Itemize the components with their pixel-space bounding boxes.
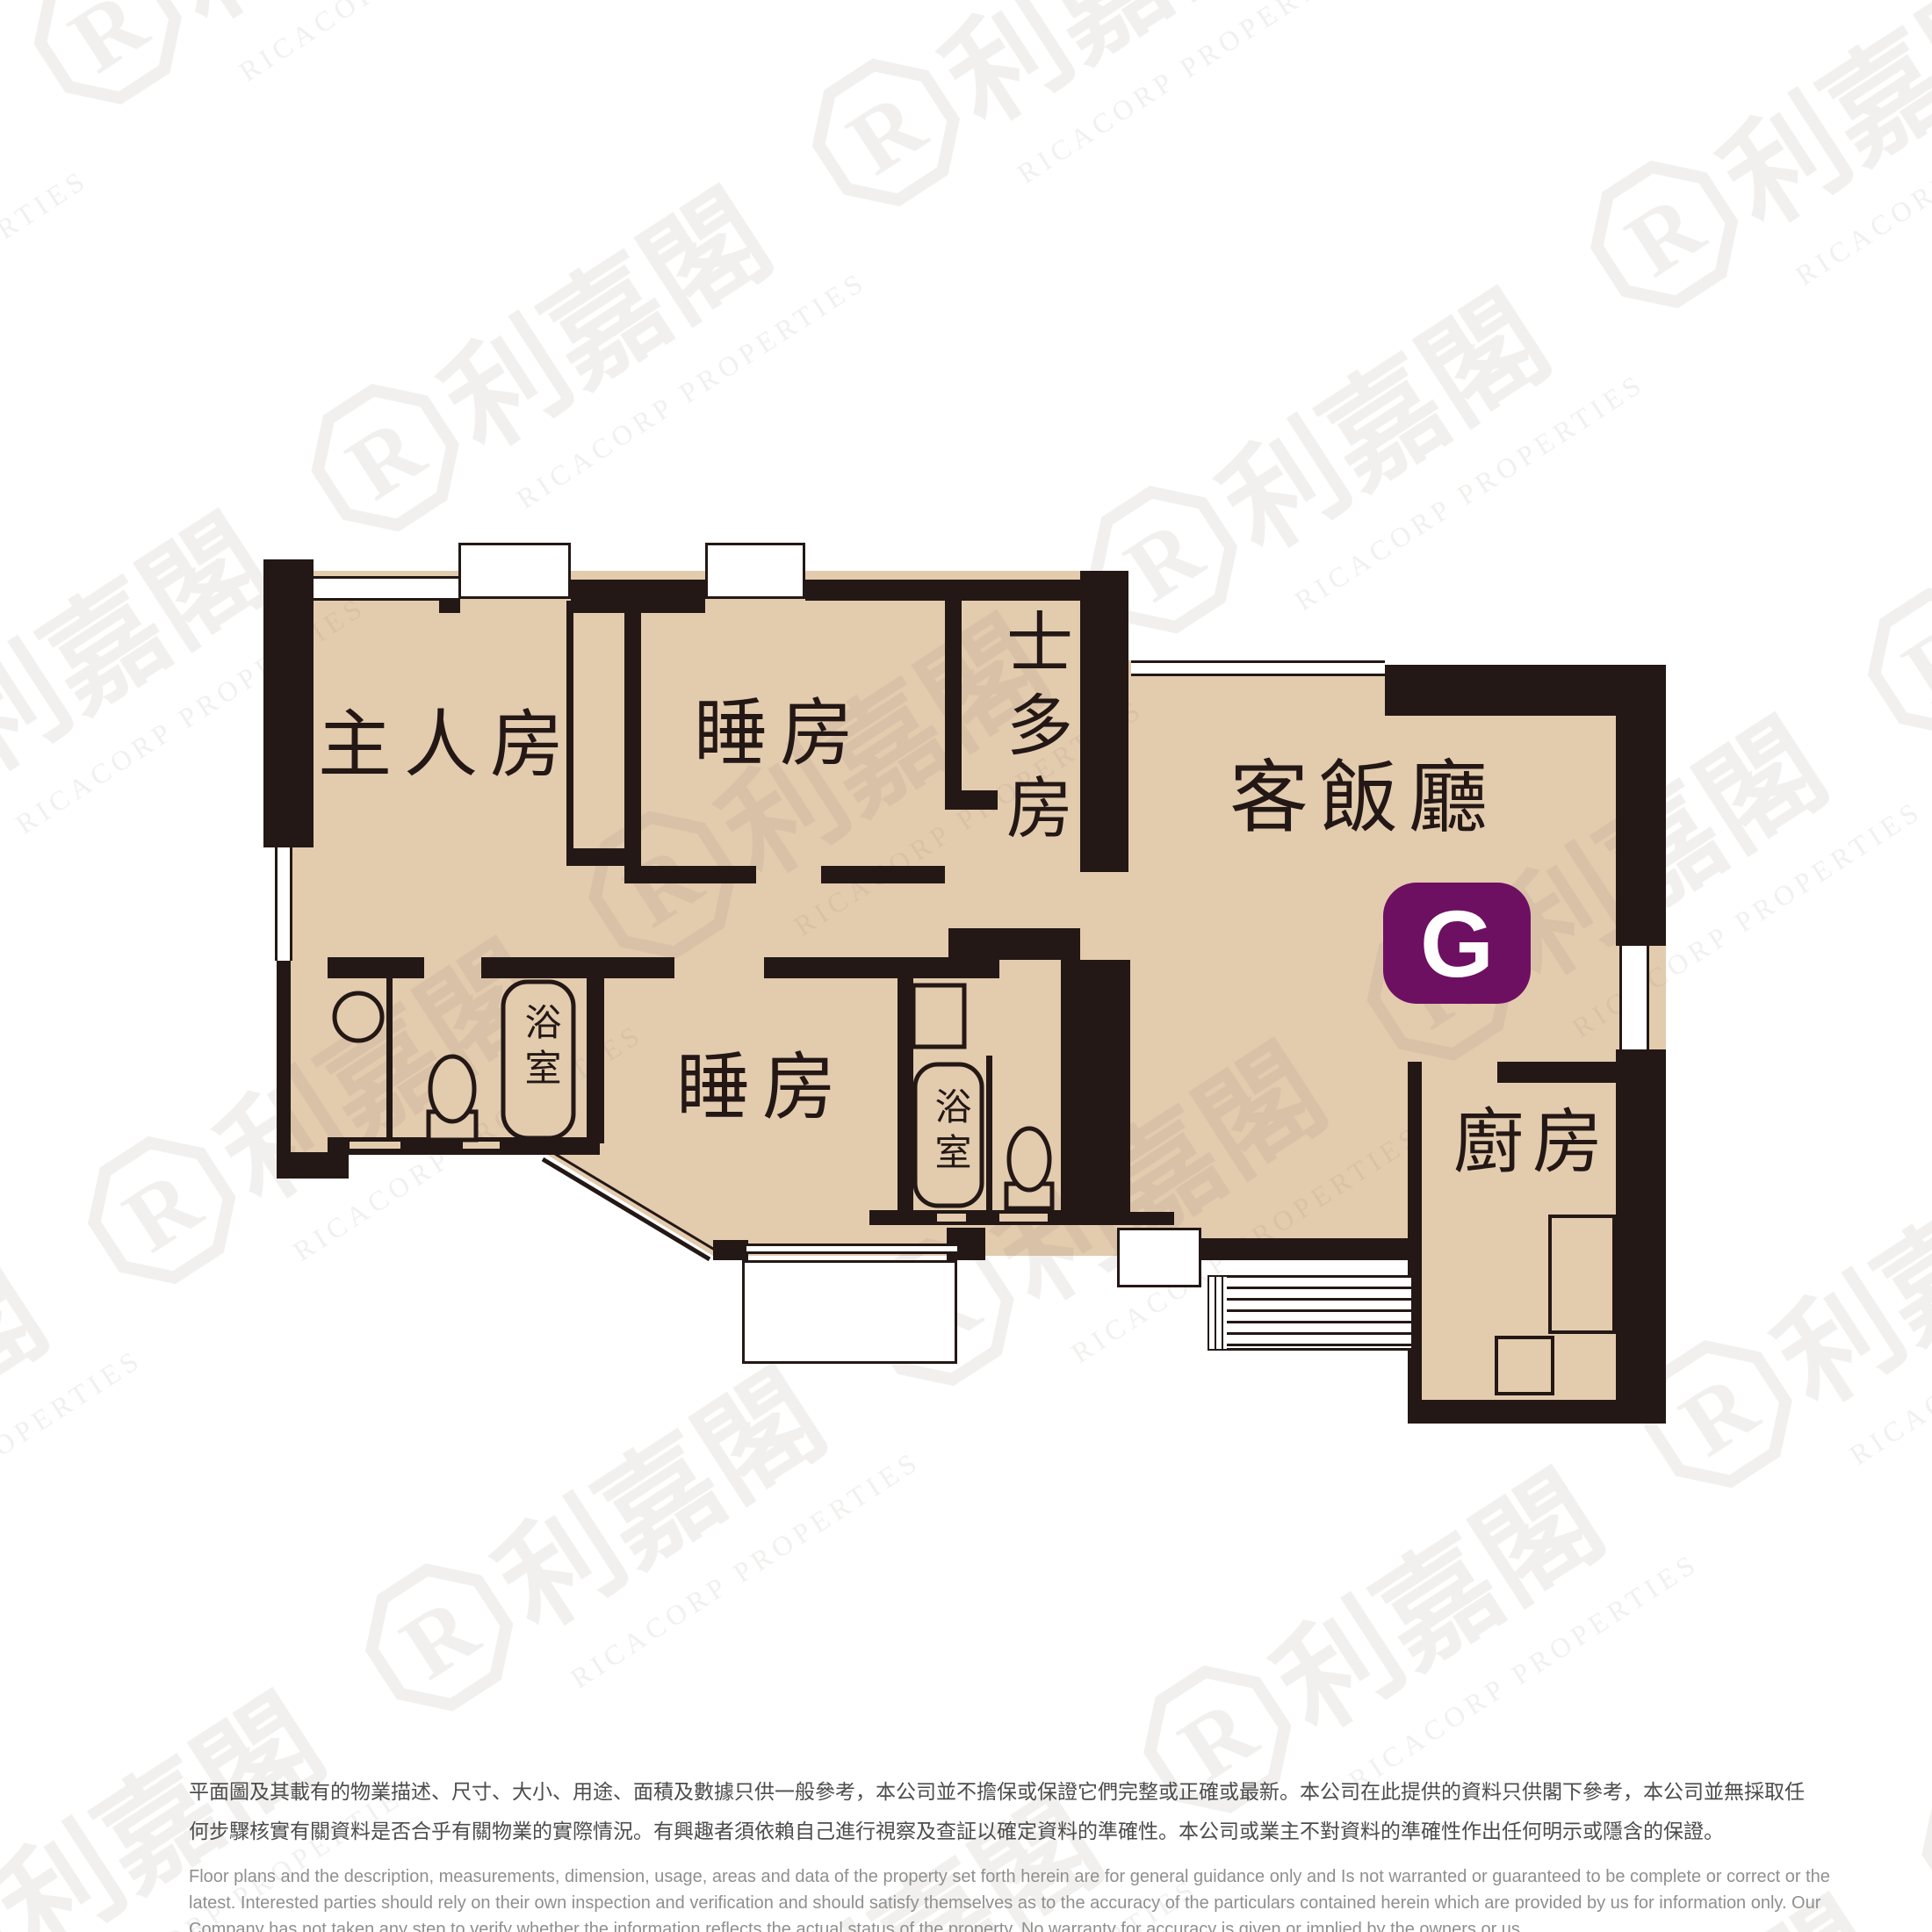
room-label-storeroom: 士多房 [999, 608, 1066, 855]
wall-slit [999, 1214, 1048, 1222]
window-bedroom2-bottom [746, 1244, 957, 1254]
wall-toilet1-top [328, 957, 424, 978]
diagonal-window-outer [543, 1159, 710, 1259]
room-label-kitchen: 廚房 [1453, 1108, 1611, 1179]
room-label-bedroom-top: 睡房 [694, 698, 866, 772]
window-right-wall [1619, 946, 1649, 1049]
disclaimer-chinese-line2: 何步驟核實有關資料是否合乎有關物業的實際情況。有興趣者須依賴自己進行視察及查証以… [189, 1812, 1770, 1851]
wall-bath2-right [986, 1056, 992, 1212]
toilet-1-bowl [430, 1056, 474, 1121]
wall-living-bottom [1197, 1238, 1409, 1260]
entrance-box [1117, 1228, 1201, 1287]
bay-window-2 [705, 543, 805, 599]
room-label-bathroom-2: 浴室 [931, 1087, 968, 1179]
room-label-bedroom-bottom: 睡房 [676, 1052, 848, 1126]
toilet-2-base [1006, 1184, 1052, 1208]
wall-toilet1-partition [386, 977, 393, 1139]
window-living-top [1131, 660, 1385, 676]
wall-hall-column [1061, 960, 1130, 1225]
louver-platform [1207, 1275, 1414, 1351]
wall-entrance-stub [1130, 1212, 1174, 1225]
disclaimer-english-line3: Company has not taken any step to verify… [189, 1916, 1770, 1932]
wall-top-right [805, 580, 1080, 601]
wall-slit [937, 1214, 966, 1222]
kitchen-appliance [1496, 1337, 1553, 1394]
disclaimer-block: 平面圖及其載有的物業描述、尺寸、大小、用途、面積及數據只供一般參考，本公司並不擔… [189, 1772, 1770, 1932]
bay-window-1 [458, 543, 571, 599]
washbasin-icon [335, 993, 382, 1041]
wall-right-kitchen [1616, 1049, 1666, 1424]
disclaimer-english-line2: latest. Interested parties should rely o… [189, 1890, 1770, 1916]
floor-plan-canvas: R 利嘉閣 RICACORP PROPERTIES [0, 0, 1932, 1932]
wall-kitchen-top [1497, 1062, 1616, 1083]
wall-master-door-jamb [566, 848, 626, 866]
toilet-2-bowl [1009, 1128, 1049, 1190]
toilet-1-base [429, 1112, 476, 1140]
window-top-left [314, 576, 458, 601]
wall-storeroom-bottom [948, 928, 1080, 960]
wall-bedroom1-storeroom-stub [945, 790, 998, 810]
wall-bath2-left [898, 973, 913, 1212]
wall-bedroom1-bottom-b [821, 866, 945, 883]
room-label-living-dining: 客飯廳 [1229, 760, 1498, 839]
wall-slit [350, 1142, 400, 1149]
wall-storeroom-column [1080, 571, 1128, 872]
disclaimer-chinese-line1: 平面圖及其載有的物業描述、尺寸、大小、用途、面積及數據只供一般參考，本公司並不擔… [189, 1772, 1770, 1812]
bay-window-bottom [742, 1260, 957, 1364]
wall-slit [463, 1142, 500, 1149]
bath2-basin [913, 985, 964, 1047]
louver-platform-side [1209, 1277, 1227, 1349]
wall-bedroom1-storeroom [945, 580, 962, 810]
wall-bedroom1-left [624, 601, 641, 883]
wall-bedroom1-bottom-a [624, 866, 756, 883]
kitchen-counter [1550, 1216, 1614, 1332]
wall-right-upper [1616, 716, 1666, 946]
wall-top-left-column [263, 559, 314, 847]
room-label-bathroom-1: 浴室 [521, 1003, 558, 1094]
wall-bedroom2-bottom-a [713, 1240, 748, 1260]
disclaimer-english-line1: Floor plans and the description, measure… [189, 1864, 1770, 1890]
diagonal-window-inner [551, 1151, 717, 1251]
wall-bath1-bedroom2-divider [587, 957, 604, 1143]
window-left-wall [275, 847, 292, 961]
unit-badge: G [1383, 883, 1531, 1004]
wall-left-corner-block [277, 1152, 349, 1179]
wall-living-top-thick [1385, 665, 1666, 716]
wall-bath1-top [481, 957, 674, 978]
wall-left-lower [277, 961, 291, 1154]
room-label-master-bedroom: 主人房 [318, 710, 576, 783]
wall-kitchen-bottom [1408, 1400, 1666, 1424]
wall-bedroom2-top [764, 957, 999, 978]
